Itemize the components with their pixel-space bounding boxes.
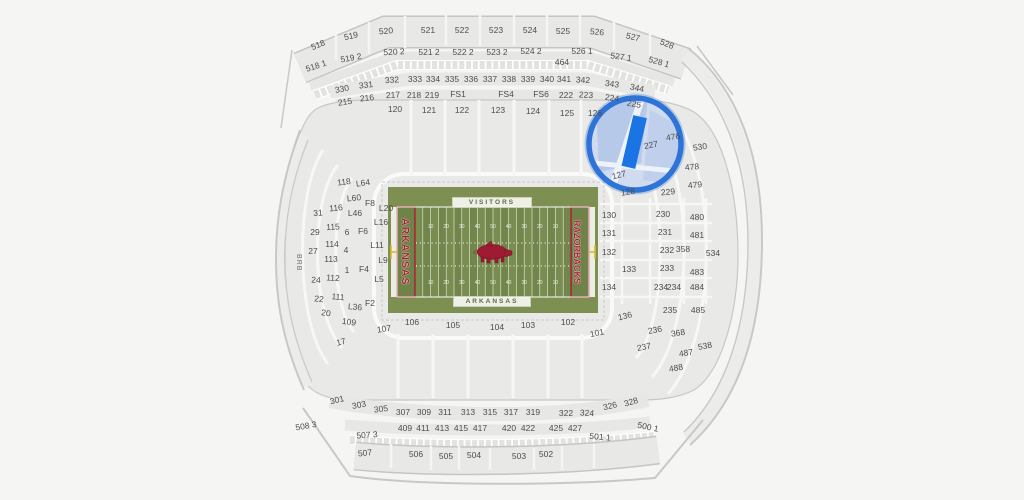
section-label-107[interactable]: 107: [376, 324, 391, 334]
section-label-4[interactable]: 4: [344, 246, 349, 255]
section-label-128[interactable]: 128: [620, 187, 635, 197]
section-label-464[interactable]: 464: [555, 58, 569, 67]
section-label-225[interactable]: 225: [626, 99, 641, 110]
section-label-335[interactable]: 335: [445, 75, 459, 84]
section-label-504[interactable]: 504: [467, 451, 481, 460]
section-label-105[interactable]: 105: [446, 321, 460, 330]
section-label-F2[interactable]: F2: [365, 299, 375, 308]
section-label-518-1[interactable]: 518 1: [305, 59, 328, 74]
section-label-111[interactable]: 111: [331, 292, 345, 302]
section-label-218[interactable]: 218: [407, 91, 421, 100]
section-label-126[interactable]: 126: [588, 109, 602, 118]
section-label-411[interactable]: 411: [416, 424, 430, 433]
section-label-305[interactable]: 305: [373, 404, 388, 414]
section-label-501-1[interactable]: 501 1: [589, 432, 611, 442]
section-label-523-2[interactable]: 523 2: [486, 48, 507, 57]
section-label-307[interactable]: 307: [396, 408, 410, 417]
section-label-500-1[interactable]: 500 1: [637, 421, 660, 434]
section-label-417[interactable]: 417: [473, 424, 487, 433]
section-label-525[interactable]: 525: [556, 27, 570, 36]
section-label-24[interactable]: 24: [311, 276, 321, 285]
section-label-136[interactable]: 136: [617, 310, 633, 322]
section-label-22[interactable]: 22: [314, 294, 324, 303]
section-label-506[interactable]: 506: [409, 450, 423, 459]
section-label-116[interactable]: 116: [329, 203, 343, 213]
section-label-317[interactable]: 317: [504, 408, 518, 417]
section-label-526-1[interactable]: 526 1: [571, 47, 592, 56]
section-label-413[interactable]: 413: [435, 424, 449, 433]
section-label-230[interactable]: 230: [656, 210, 670, 219]
section-label-427[interactable]: 427: [568, 424, 582, 433]
section-label-L60[interactable]: L60: [347, 193, 362, 203]
section-label-303[interactable]: 303: [351, 399, 367, 410]
section-label-334[interactable]: 334: [426, 75, 440, 84]
section-label-106[interactable]: 106: [405, 318, 419, 327]
section-label-109[interactable]: 109: [341, 317, 356, 327]
section-label-233[interactable]: 233: [660, 264, 674, 273]
section-label-415[interactable]: 415: [454, 424, 468, 433]
section-label-524-2[interactable]: 524 2: [520, 47, 541, 56]
section-label-479[interactable]: 479: [688, 180, 703, 190]
section-label-520-2[interactable]: 520 2: [383, 47, 405, 57]
section-label-103[interactable]: 103: [521, 321, 535, 330]
section-label-17[interactable]: 17: [335, 337, 346, 348]
section-label-L20[interactable]: L20: [379, 204, 393, 213]
section-label-301[interactable]: 301: [329, 394, 345, 406]
section-label-524[interactable]: 524: [523, 26, 537, 35]
section-label-121[interactable]: 121: [422, 106, 436, 115]
section-label-102[interactable]: 102: [561, 318, 575, 327]
section-label-309[interactable]: 309: [417, 408, 431, 417]
section-label-478[interactable]: 478: [685, 162, 700, 172]
section-label-344[interactable]: 344: [629, 82, 645, 93]
section-label-343[interactable]: 343: [604, 79, 619, 89]
section-label-222[interactable]: 222: [559, 91, 573, 100]
section-label-324[interactable]: 324: [580, 408, 595, 417]
section-label-322[interactable]: 322: [559, 409, 573, 418]
section-label-527-1[interactable]: 527 1: [610, 51, 632, 62]
section-label-104[interactable]: 104: [490, 323, 504, 332]
section-label-331[interactable]: 331: [358, 80, 373, 90]
section-label-217[interactable]: 217: [386, 90, 401, 99]
section-label-505[interactable]: 505: [439, 452, 453, 461]
section-label-425[interactable]: 425: [549, 424, 563, 433]
section-label-311[interactable]: 311: [438, 408, 452, 417]
section-label-215[interactable]: 215: [337, 97, 352, 107]
section-label-422[interactable]: 422: [521, 424, 535, 433]
section-label-232[interactable]: 232: [660, 246, 674, 255]
section-label-522-2[interactable]: 522 2: [452, 48, 473, 57]
section-label-485[interactable]: 485: [691, 306, 705, 315]
section-label-236[interactable]: 236: [647, 325, 662, 336]
section-label-342[interactable]: 342: [576, 75, 591, 84]
section-label-FS1[interactable]: FS1: [450, 90, 466, 99]
section-label-113[interactable]: 113: [324, 255, 338, 264]
section-label-L5[interactable]: L5: [374, 275, 383, 284]
section-label-336[interactable]: 336: [464, 75, 478, 84]
section-label-234[interactable]: 234: [667, 283, 681, 292]
section-label-216[interactable]: 216: [360, 93, 375, 103]
section-label-6[interactable]: 6: [345, 228, 350, 237]
section-label-219[interactable]: 219: [425, 91, 439, 100]
section-label-124[interactable]: 124: [526, 107, 540, 116]
section-label-L11[interactable]: L11: [370, 241, 384, 250]
section-label-L64[interactable]: L64: [355, 178, 370, 188]
section-label-480[interactable]: 480: [690, 213, 704, 222]
section-label-340[interactable]: 340: [540, 75, 554, 84]
section-label-31[interactable]: 31: [313, 209, 323, 218]
section-label-223[interactable]: 223: [579, 90, 594, 99]
section-label-358[interactable]: 358: [676, 245, 690, 254]
section-label-527[interactable]: 527: [625, 31, 641, 42]
section-label-526[interactable]: 526: [590, 27, 605, 37]
section-label-523[interactable]: 523: [489, 26, 503, 35]
section-label-122[interactable]: 122: [455, 106, 469, 115]
section-label-114[interactable]: 114: [325, 240, 339, 249]
section-label-507-3[interactable]: 507 3: [356, 430, 378, 440]
section-label-115[interactable]: 115: [326, 222, 340, 231]
section-label-118[interactable]: 118: [337, 177, 352, 187]
section-label-528[interactable]: 528: [659, 37, 675, 50]
section-label-330[interactable]: 330: [334, 84, 349, 95]
section-label-476[interactable]: 476: [665, 132, 680, 142]
section-label-337[interactable]: 337: [483, 75, 497, 84]
section-label-488[interactable]: 488: [668, 363, 683, 374]
section-label-F8[interactable]: F8: [365, 199, 375, 208]
section-label-508-3[interactable]: 508 3: [295, 420, 317, 432]
section-label-FS6[interactable]: FS6: [533, 90, 549, 99]
section-label-520[interactable]: 520: [379, 26, 394, 36]
section-label-521-2[interactable]: 521 2: [418, 48, 439, 57]
section-label-F6[interactable]: F6: [358, 227, 368, 236]
section-label-507[interactable]: 507: [358, 448, 373, 458]
section-label-339[interactable]: 339: [521, 75, 535, 84]
section-label-133[interactable]: 133: [622, 265, 636, 274]
section-label-530[interactable]: 530: [692, 142, 707, 152]
stadium-map: 102030405040302010 102030405040302010: [0, 0, 1024, 500]
section-label-127[interactable]: 127: [611, 169, 627, 181]
section-label-224[interactable]: 224: [604, 93, 619, 103]
section-label-332[interactable]: 332: [385, 75, 400, 84]
section-label-123[interactable]: 123: [491, 106, 505, 115]
section-label-229[interactable]: 229: [661, 187, 676, 197]
section-label-503[interactable]: 503: [512, 452, 526, 461]
section-label-409[interactable]: 409: [398, 424, 412, 433]
section-label-502[interactable]: 502: [539, 450, 553, 459]
section-label-538[interactable]: 538: [697, 341, 712, 352]
section-label-130[interactable]: 130: [602, 211, 616, 220]
section-label-518[interactable]: 518: [310, 38, 326, 51]
section-labels-layer: 518519520521522523524525526527528518 151…: [0, 0, 1024, 500]
section-label-L16[interactable]: L16: [374, 218, 388, 227]
section-label-120[interactable]: 120: [388, 105, 402, 114]
section-label-522[interactable]: 522: [455, 26, 469, 35]
section-label-237[interactable]: 237: [636, 341, 652, 352]
section-label-29[interactable]: 29: [310, 228, 319, 237]
section-label-519-2[interactable]: 519 2: [340, 52, 362, 64]
section-label-313[interactable]: 313: [461, 408, 475, 417]
section-label-101[interactable]: 101: [589, 327, 605, 338]
section-label-341[interactable]: 341: [557, 75, 571, 84]
section-label-484[interactable]: 484: [690, 283, 704, 292]
section-label-534[interactable]: 534: [706, 249, 720, 258]
section-label-L46[interactable]: L46: [348, 209, 362, 218]
section-label-L9[interactable]: L9: [378, 256, 387, 265]
section-label-FS4[interactable]: FS4: [498, 90, 514, 99]
section-label-420[interactable]: 420: [502, 424, 516, 433]
section-label-521[interactable]: 521: [421, 26, 435, 35]
section-label-519[interactable]: 519: [343, 30, 359, 41]
section-label-L36[interactable]: L36: [348, 302, 363, 312]
section-label-368[interactable]: 368: [670, 328, 685, 338]
section-label-112[interactable]: 112: [326, 273, 340, 282]
section-label-134[interactable]: 134: [602, 283, 616, 292]
section-label-235[interactable]: 235: [663, 306, 677, 315]
section-label-20[interactable]: 20: [321, 308, 332, 318]
section-label-1[interactable]: 1: [345, 266, 350, 275]
section-label-528-1[interactable]: 528 1: [648, 55, 671, 69]
section-label-328[interactable]: 328: [623, 396, 639, 408]
section-label-483[interactable]: 483: [690, 268, 704, 277]
section-label-132[interactable]: 132: [602, 248, 616, 257]
section-label-227[interactable]: 227: [643, 140, 658, 151]
section-label-231[interactable]: 231: [658, 228, 672, 237]
section-label-487[interactable]: 487: [678, 348, 693, 358]
section-label-481[interactable]: 481: [690, 231, 704, 240]
section-label-F4[interactable]: F4: [359, 265, 369, 274]
section-label-125[interactable]: 125: [560, 109, 574, 118]
section-label-326[interactable]: 326: [602, 400, 618, 411]
section-label-319[interactable]: 319: [526, 408, 540, 417]
section-label-315[interactable]: 315: [483, 408, 497, 417]
section-label-131[interactable]: 131: [602, 229, 616, 238]
section-label-338[interactable]: 338: [502, 75, 516, 84]
section-label-27[interactable]: 27: [308, 247, 317, 256]
section-label-333[interactable]: 333: [408, 75, 422, 84]
